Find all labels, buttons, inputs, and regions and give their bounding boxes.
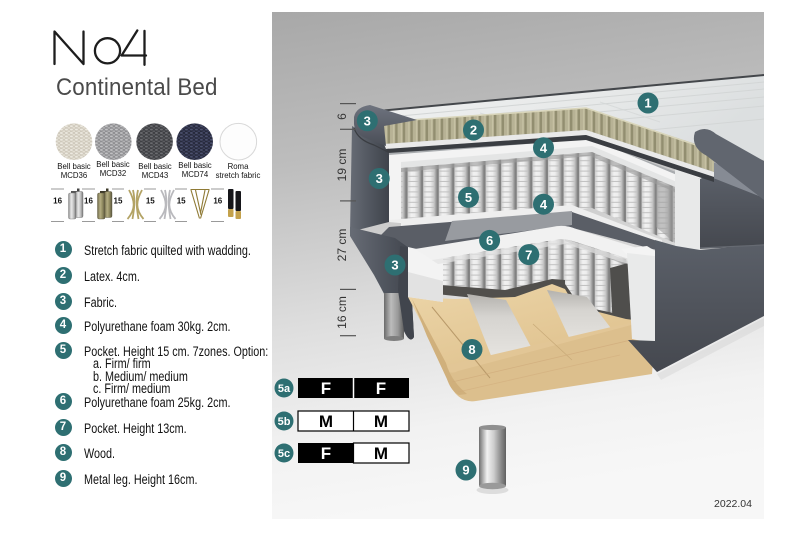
svg-text:4: 4 [540,197,548,212]
svg-text:27 cm: 27 cm [335,229,349,262]
svg-text:8: 8 [468,342,475,357]
svg-text:9: 9 [462,463,469,478]
svg-text:F: F [321,444,331,463]
svg-text:3: 3 [376,171,383,186]
svg-text:F: F [376,379,386,398]
svg-text:5b: 5b [278,416,291,428]
svg-text:4: 4 [540,140,548,155]
svg-text:16 cm: 16 cm [335,296,349,329]
svg-text:1: 1 [644,96,651,111]
svg-text:19 cm: 19 cm [335,149,349,182]
svg-text:M: M [374,412,388,431]
svg-text:7: 7 [525,247,532,262]
svg-text:5: 5 [465,190,472,205]
svg-text:5c: 5c [278,448,290,460]
svg-text:6: 6 [335,113,349,120]
svg-text:5a: 5a [278,383,291,395]
svg-text:F: F [321,379,331,398]
svg-text:3: 3 [391,258,398,273]
svg-text:M: M [374,444,388,463]
svg-text:6: 6 [486,233,493,248]
svg-text:2: 2 [470,123,477,138]
svg-text:2022.04: 2022.04 [714,498,752,510]
svg-text:M: M [319,412,333,431]
svg-text:3: 3 [364,114,371,129]
